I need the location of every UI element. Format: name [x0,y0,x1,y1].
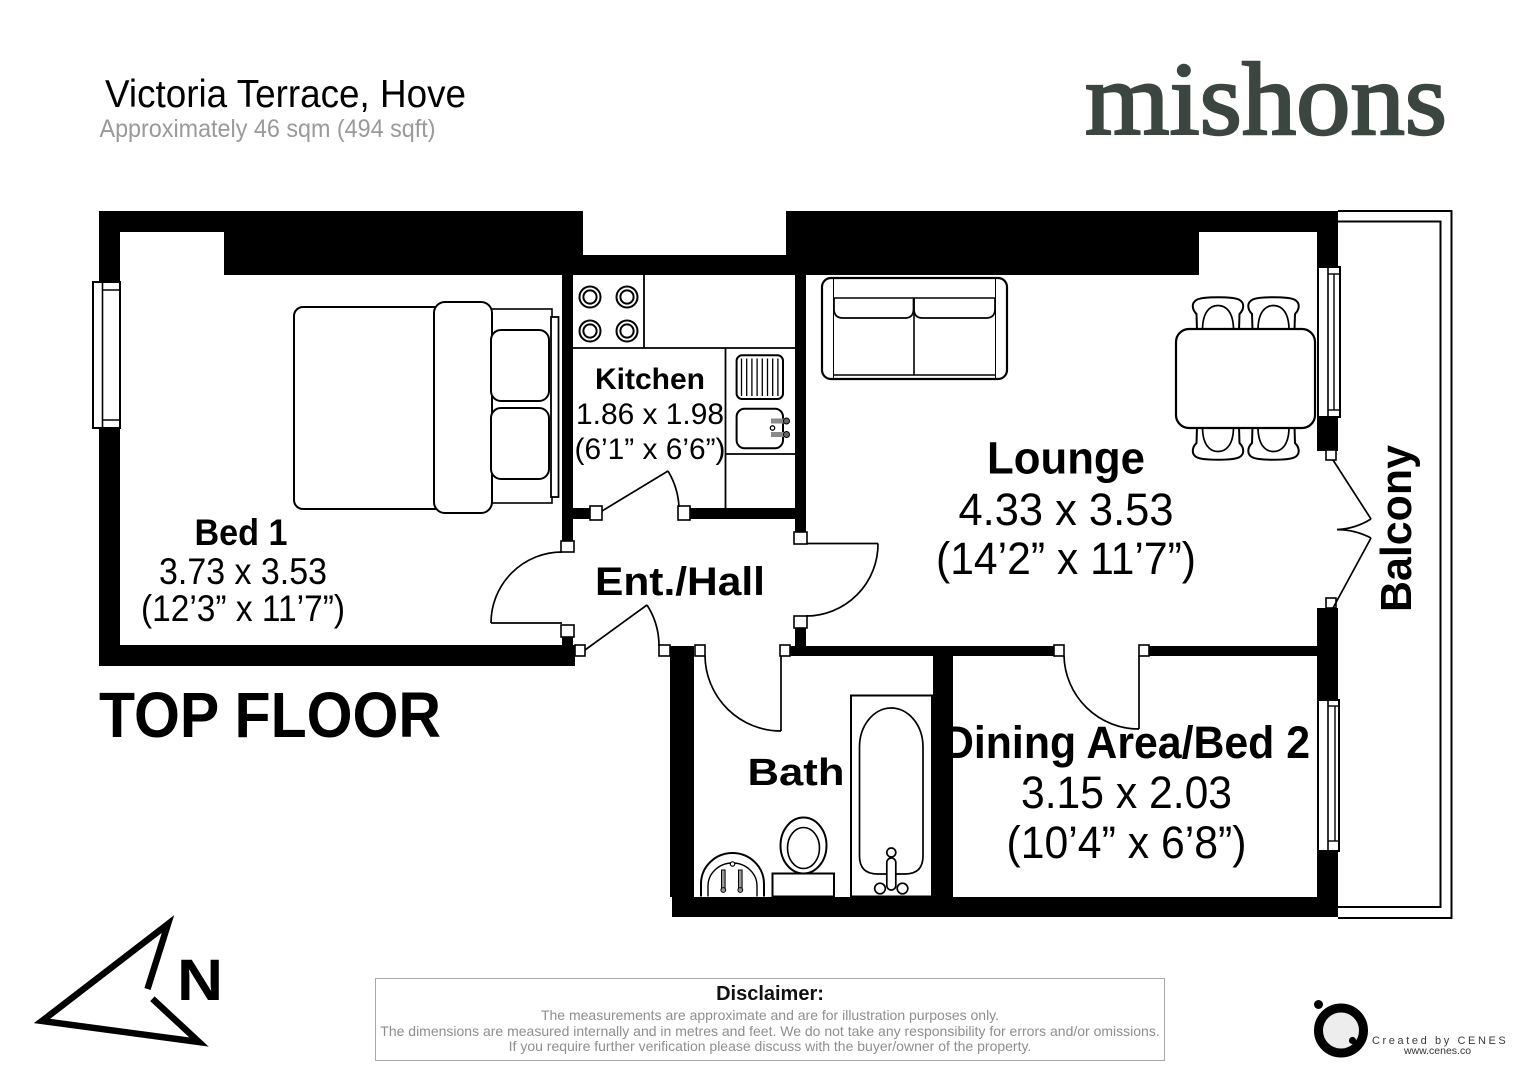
svg-text:Kitchen: Kitchen [595,363,705,396]
svg-text:TOP FLOOR: TOP FLOOR [99,679,441,751]
svg-text:Lounge: Lounge [987,433,1145,484]
svg-text:mishons: mishons [1085,42,1447,157]
svg-text:Approximately 46 sqm (494 sqft: Approximately 46 sqm (494 sqft) [100,115,436,143]
svg-text:(6’1” x 6’6”): (6’1” x 6’6”) [575,433,726,466]
svg-text:Balcony: Balcony [1372,444,1421,612]
svg-text:N: N [177,948,223,1013]
svg-text:Ent./Hall: Ent./Hall [595,560,765,604]
svg-text:Bath: Bath [748,752,845,794]
svg-text:3.15 x 2.03: 3.15 x 2.03 [1021,767,1232,818]
svg-text:(12’3” x 11’7”): (12’3” x 11’7”) [141,588,345,629]
svg-text:4.33 x 3.53: 4.33 x 3.53 [959,484,1174,535]
svg-text:Victoria Terrace, Hove: Victoria Terrace, Hove [105,73,466,116]
svg-text:3.73 x 3.53: 3.73 x 3.53 [159,551,327,592]
svg-text:Dining Area/Bed 2: Dining Area/Bed 2 [943,717,1310,768]
svg-text:Bed 1: Bed 1 [195,512,288,553]
svg-text:(10’4” x 6’8”): (10’4” x 6’8”) [1007,817,1247,868]
svg-text:1.86 x 1.98: 1.86 x 1.98 [576,398,724,431]
svg-text:www.cenes.co: www.cenes.co [1403,1045,1471,1057]
svg-text:(14’2” x 11’7”): (14’2” x 11’7”) [936,533,1196,584]
